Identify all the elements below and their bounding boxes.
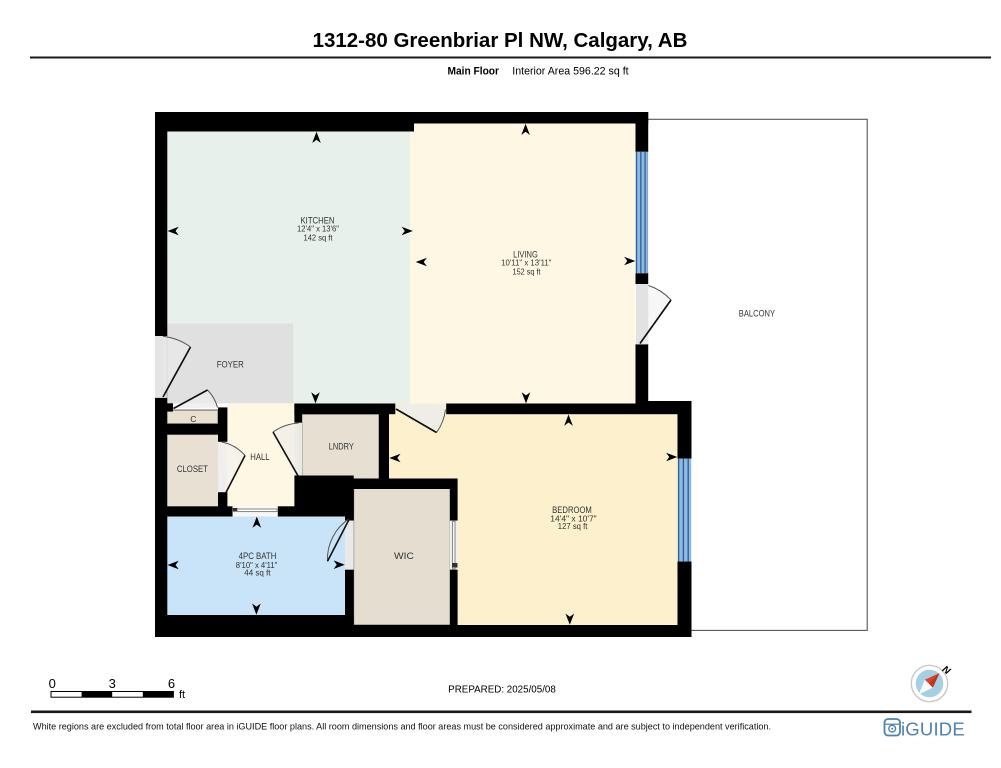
svg-text:HALL: HALL <box>250 452 269 463</box>
svg-text:Main Floor: Main Floor <box>448 66 500 78</box>
svg-text:C: C <box>190 414 196 424</box>
svg-text:iGUIDE: iGUIDE <box>901 719 965 740</box>
svg-text:PREPARED: 2025/05/08: PREPARED: 2025/05/08 <box>448 685 556 696</box>
svg-text:Interior Area 596.22 sq ft: Interior Area 596.22 sq ft <box>512 66 629 78</box>
svg-text:White regions are excluded fro: White regions are excluded from total fl… <box>33 721 771 732</box>
svg-text:127 sq ft: 127 sq ft <box>558 521 588 531</box>
svg-text:0: 0 <box>49 676 56 691</box>
svg-text:44 sq ft: 44 sq ft <box>244 567 271 577</box>
svg-text:BALCONY: BALCONY <box>739 309 776 320</box>
svg-text:LNDRY: LNDRY <box>329 442 355 453</box>
svg-text:1312-80 Greenbriar Pl NW, Calg: 1312-80 Greenbriar Pl NW, Calgary, AB <box>313 29 688 52</box>
svg-text:FOYER: FOYER <box>217 359 244 370</box>
svg-text:6: 6 <box>168 676 175 691</box>
svg-text:142 sq ft: 142 sq ft <box>304 232 334 242</box>
svg-text:ft: ft <box>179 689 185 701</box>
svg-text:3: 3 <box>109 676 116 691</box>
svg-text:152 sq ft: 152 sq ft <box>513 267 541 277</box>
svg-text:WIC: WIC <box>394 551 414 562</box>
svg-text:CLOSET: CLOSET <box>177 464 208 475</box>
